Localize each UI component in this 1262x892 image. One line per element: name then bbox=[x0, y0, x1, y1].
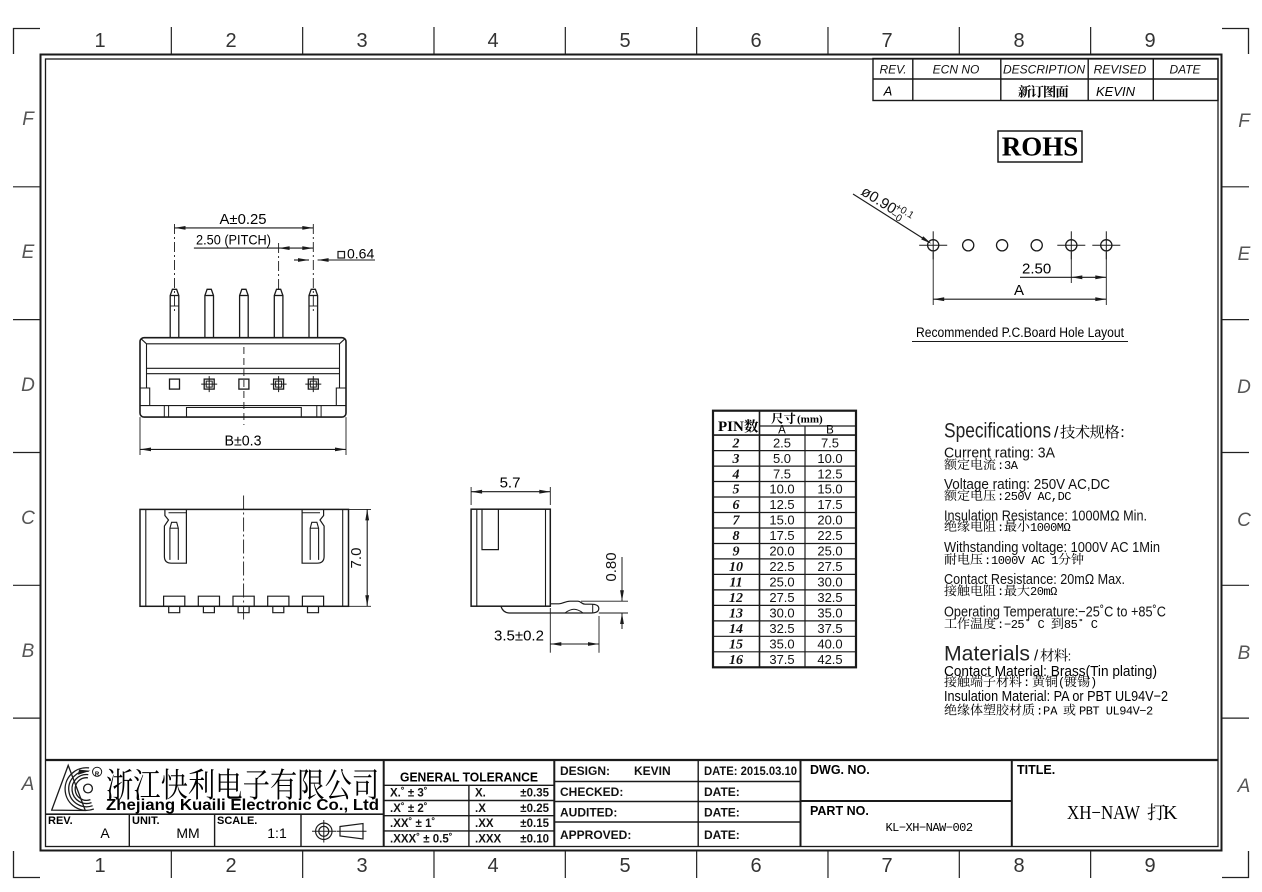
svg-text:27.5: 27.5 bbox=[817, 559, 842, 574]
svg-text:B±0.3: B±0.3 bbox=[225, 434, 262, 450]
svg-text:DWG. NO.: DWG. NO. bbox=[810, 763, 870, 777]
svg-text:6: 6 bbox=[750, 855, 761, 877]
svg-text:10.0: 10.0 bbox=[817, 451, 842, 466]
svg-text:F: F bbox=[22, 109, 35, 130]
svg-text:8: 8 bbox=[1013, 855, 1024, 877]
svg-text:DESCRIPTION: DESCRIPTION bbox=[1003, 63, 1085, 77]
svg-text:E: E bbox=[1238, 244, 1251, 265]
svg-text:ROHS: ROHS bbox=[1002, 132, 1079, 162]
svg-text:27.5: 27.5 bbox=[769, 590, 794, 605]
svg-text:ECN NO: ECN NO bbox=[933, 63, 980, 77]
svg-text:5: 5 bbox=[733, 483, 740, 498]
svg-text:8: 8 bbox=[733, 529, 740, 544]
svg-text:10: 10 bbox=[729, 560, 743, 575]
svg-text:7: 7 bbox=[733, 514, 741, 529]
svg-text:11: 11 bbox=[729, 576, 742, 591]
svg-text:D: D bbox=[1237, 377, 1251, 398]
svg-text:5.0: 5.0 bbox=[773, 451, 791, 466]
svg-text:17.5: 17.5 bbox=[769, 528, 794, 543]
svg-text:−25˚ C: −25˚ C bbox=[1004, 618, 1045, 632]
svg-text:8: 8 bbox=[1013, 30, 1024, 52]
svg-text:17.5: 17.5 bbox=[817, 497, 842, 512]
svg-text:(mm): (mm) bbox=[797, 414, 823, 426]
svg-text:12: 12 bbox=[729, 591, 743, 606]
svg-text:E: E bbox=[22, 242, 35, 263]
svg-text:±0.10: ±0.10 bbox=[520, 833, 549, 845]
svg-text:Materials: Materials bbox=[944, 643, 1030, 666]
svg-text:0.80: 0.80 bbox=[603, 552, 620, 581]
svg-text:KEVIN: KEVIN bbox=[634, 764, 671, 778]
svg-text:DATE:: DATE: bbox=[704, 785, 740, 799]
svg-text:2.50 (PITCH): 2.50 (PITCH) bbox=[196, 232, 271, 248]
svg-text:250V AC,DC: 250V AC,DC bbox=[1004, 490, 1071, 504]
svg-text:35.0: 35.0 bbox=[769, 637, 794, 652]
svg-text:CHECKED:: CHECKED: bbox=[560, 785, 623, 799]
svg-text:22.5: 22.5 bbox=[769, 559, 794, 574]
svg-text:4: 4 bbox=[487, 855, 498, 877]
svg-text:2: 2 bbox=[225, 30, 236, 52]
svg-text:Specifications: Specifications bbox=[944, 420, 1051, 443]
svg-text:AUDITED:: AUDITED: bbox=[560, 806, 617, 820]
svg-text:KL−XH−NAW−002: KL−XH−NAW−002 bbox=[885, 821, 972, 835]
svg-text:16: 16 bbox=[729, 653, 743, 668]
svg-text:DATE:: DATE: bbox=[704, 806, 740, 820]
svg-text:5: 5 bbox=[619, 30, 630, 52]
svg-text:3: 3 bbox=[356, 30, 367, 52]
svg-text:1: 1 bbox=[94, 855, 105, 877]
svg-text::: : bbox=[1068, 649, 1072, 664]
svg-text:A: A bbox=[1014, 282, 1024, 299]
svg-text:.XX˚ ± 1˚: .XX˚ ± 1˚ bbox=[390, 818, 435, 830]
svg-text:9: 9 bbox=[733, 545, 740, 560]
svg-text:SCALE.: SCALE. bbox=[217, 815, 257, 827]
svg-text:1000V AC 1: 1000V AC 1 bbox=[991, 554, 1058, 568]
svg-text:MM: MM bbox=[176, 825, 199, 841]
svg-text:22.5: 22.5 bbox=[817, 528, 842, 543]
svg-text:C: C bbox=[21, 508, 35, 529]
svg-text:/: / bbox=[1054, 425, 1059, 442]
svg-text:PART NO.: PART NO. bbox=[810, 804, 869, 818]
svg-text:32.5: 32.5 bbox=[769, 621, 794, 636]
svg-text:2.5: 2.5 bbox=[773, 435, 791, 450]
svg-text:30.0: 30.0 bbox=[769, 606, 794, 621]
svg-text:X.: X. bbox=[475, 788, 486, 800]
svg-text:Recommended P.C.Board Hole L: Recommended P.C.Board Hole Layout bbox=[916, 325, 1124, 340]
svg-text:±0.25: ±0.25 bbox=[520, 803, 549, 815]
svg-text:REV.: REV. bbox=[879, 63, 906, 77]
svg-text:3: 3 bbox=[732, 452, 740, 467]
svg-text:DATE: DATE bbox=[1169, 63, 1201, 77]
svg-text:F: F bbox=[1238, 111, 1251, 132]
svg-text:6: 6 bbox=[750, 30, 761, 52]
svg-text:25.0: 25.0 bbox=[817, 544, 842, 559]
svg-text:K: K bbox=[1163, 802, 1178, 824]
svg-text:TITLE.: TITLE. bbox=[1017, 763, 1055, 777]
svg-text:X.˚ ± 3˚: X.˚ ± 3˚ bbox=[390, 788, 428, 800]
svg-text:15.0: 15.0 bbox=[769, 513, 794, 528]
svg-text:10.0: 10.0 bbox=[769, 482, 794, 497]
svg-text:12.5: 12.5 bbox=[769, 497, 794, 512]
svg-text:±0.15: ±0.15 bbox=[520, 818, 549, 830]
svg-text:4: 4 bbox=[732, 467, 740, 482]
svg-text:C: C bbox=[1237, 510, 1251, 531]
svg-text:5: 5 bbox=[619, 855, 630, 877]
svg-text:DATE: 2015.03.10: DATE: 2015.03.10 bbox=[704, 764, 797, 778]
svg-text:0.64: 0.64 bbox=[347, 246, 374, 262]
svg-text:4: 4 bbox=[487, 30, 498, 52]
svg-text:Zhejiang Kuaili Electronic: Zhejiang Kuaili Electronic Co., Ltd bbox=[106, 797, 379, 814]
svg-text:3.5±0.2: 3.5±0.2 bbox=[494, 628, 544, 645]
svg-text:A±0.25: A±0.25 bbox=[220, 212, 267, 228]
svg-text:14: 14 bbox=[729, 622, 743, 637]
svg-text:7: 7 bbox=[881, 855, 892, 877]
svg-text:2.50: 2.50 bbox=[1022, 261, 1051, 278]
svg-text:.XXX˚ ± 0.5˚: .XXX˚ ± 0.5˚ bbox=[390, 833, 453, 845]
svg-text:15.0: 15.0 bbox=[817, 482, 842, 497]
svg-text:±0.35: ±0.35 bbox=[520, 788, 549, 800]
svg-text:40.0: 40.0 bbox=[817, 637, 842, 652]
svg-text:D: D bbox=[21, 375, 35, 396]
svg-text:2: 2 bbox=[732, 436, 740, 451]
svg-text:A: A bbox=[1237, 776, 1251, 797]
svg-text:A: A bbox=[100, 825, 110, 841]
svg-text:9: 9 bbox=[1144, 30, 1155, 52]
svg-text:A: A bbox=[883, 84, 893, 99]
svg-text:15: 15 bbox=[729, 638, 743, 653]
svg-text:35.0: 35.0 bbox=[817, 606, 842, 621]
svg-text:20mΩ: 20mΩ bbox=[1030, 585, 1057, 599]
svg-text:1:1: 1:1 bbox=[267, 825, 287, 841]
svg-text:37.5: 37.5 bbox=[817, 621, 842, 636]
svg-text:UNIT.: UNIT. bbox=[132, 815, 160, 827]
svg-text:.XXX: .XXX bbox=[475, 833, 502, 845]
svg-text:12.5: 12.5 bbox=[817, 466, 842, 481]
svg-text::: : bbox=[997, 585, 1004, 599]
svg-text:1000MΩ: 1000MΩ bbox=[1030, 521, 1071, 535]
svg-text:DESIGN:: DESIGN: bbox=[560, 764, 610, 778]
svg-text:REVISED: REVISED bbox=[1094, 63, 1147, 77]
svg-text:20.0: 20.0 bbox=[769, 544, 794, 559]
svg-text:32.5: 32.5 bbox=[817, 590, 842, 605]
svg-text:7.5: 7.5 bbox=[773, 466, 791, 481]
svg-text:7.5: 7.5 bbox=[821, 435, 839, 450]
svg-text::: : bbox=[997, 521, 1004, 535]
svg-text:37.5: 37.5 bbox=[769, 652, 794, 667]
svg-text:GENERAL TOLERANCE: GENERAL TOLERANCE bbox=[400, 771, 538, 785]
svg-text:20.0: 20.0 bbox=[817, 513, 842, 528]
svg-text:9: 9 bbox=[1144, 855, 1155, 877]
svg-text:Insulation Material: PA or: Insulation Material: PA or PBT UL94V−2 bbox=[944, 689, 1168, 705]
svg-text:APPROVED:: APPROVED: bbox=[560, 828, 631, 842]
svg-text:5.7: 5.7 bbox=[500, 475, 521, 492]
svg-text:PIN: PIN bbox=[718, 419, 744, 435]
svg-text:KEVIN: KEVIN bbox=[1096, 84, 1136, 99]
svg-text:7: 7 bbox=[881, 30, 892, 52]
svg-text:R: R bbox=[95, 772, 100, 778]
svg-text:7.0: 7.0 bbox=[348, 548, 365, 569]
svg-text:.X˚ ± 2˚: .X˚ ± 2˚ bbox=[390, 803, 428, 815]
svg-text:6: 6 bbox=[733, 498, 740, 513]
svg-text:1: 1 bbox=[94, 30, 105, 52]
svg-text:REV.: REV. bbox=[48, 815, 73, 827]
svg-text:PA: PA bbox=[1043, 705, 1058, 719]
svg-text:B: B bbox=[22, 641, 35, 662]
svg-text:.X: .X bbox=[475, 803, 486, 815]
svg-text:3: 3 bbox=[356, 855, 367, 877]
svg-text:30.0: 30.0 bbox=[817, 575, 842, 590]
svg-text:3A: 3A bbox=[1004, 459, 1019, 473]
svg-text:DATE:: DATE: bbox=[704, 828, 740, 842]
svg-text:85˚ C: 85˚ C bbox=[1064, 618, 1098, 632]
svg-text:42.5: 42.5 bbox=[817, 652, 842, 667]
svg-text:.XX: .XX bbox=[475, 818, 494, 830]
svg-text:25.0: 25.0 bbox=[769, 575, 794, 590]
svg-text:PBT UL94V−2: PBT UL94V−2 bbox=[1079, 705, 1153, 719]
svg-text:B: B bbox=[1238, 643, 1251, 664]
svg-text:XH−NAW: XH−NAW bbox=[1067, 802, 1140, 824]
svg-text:A: A bbox=[21, 774, 35, 795]
svg-text:13: 13 bbox=[729, 607, 743, 622]
svg-text:2: 2 bbox=[225, 855, 236, 877]
